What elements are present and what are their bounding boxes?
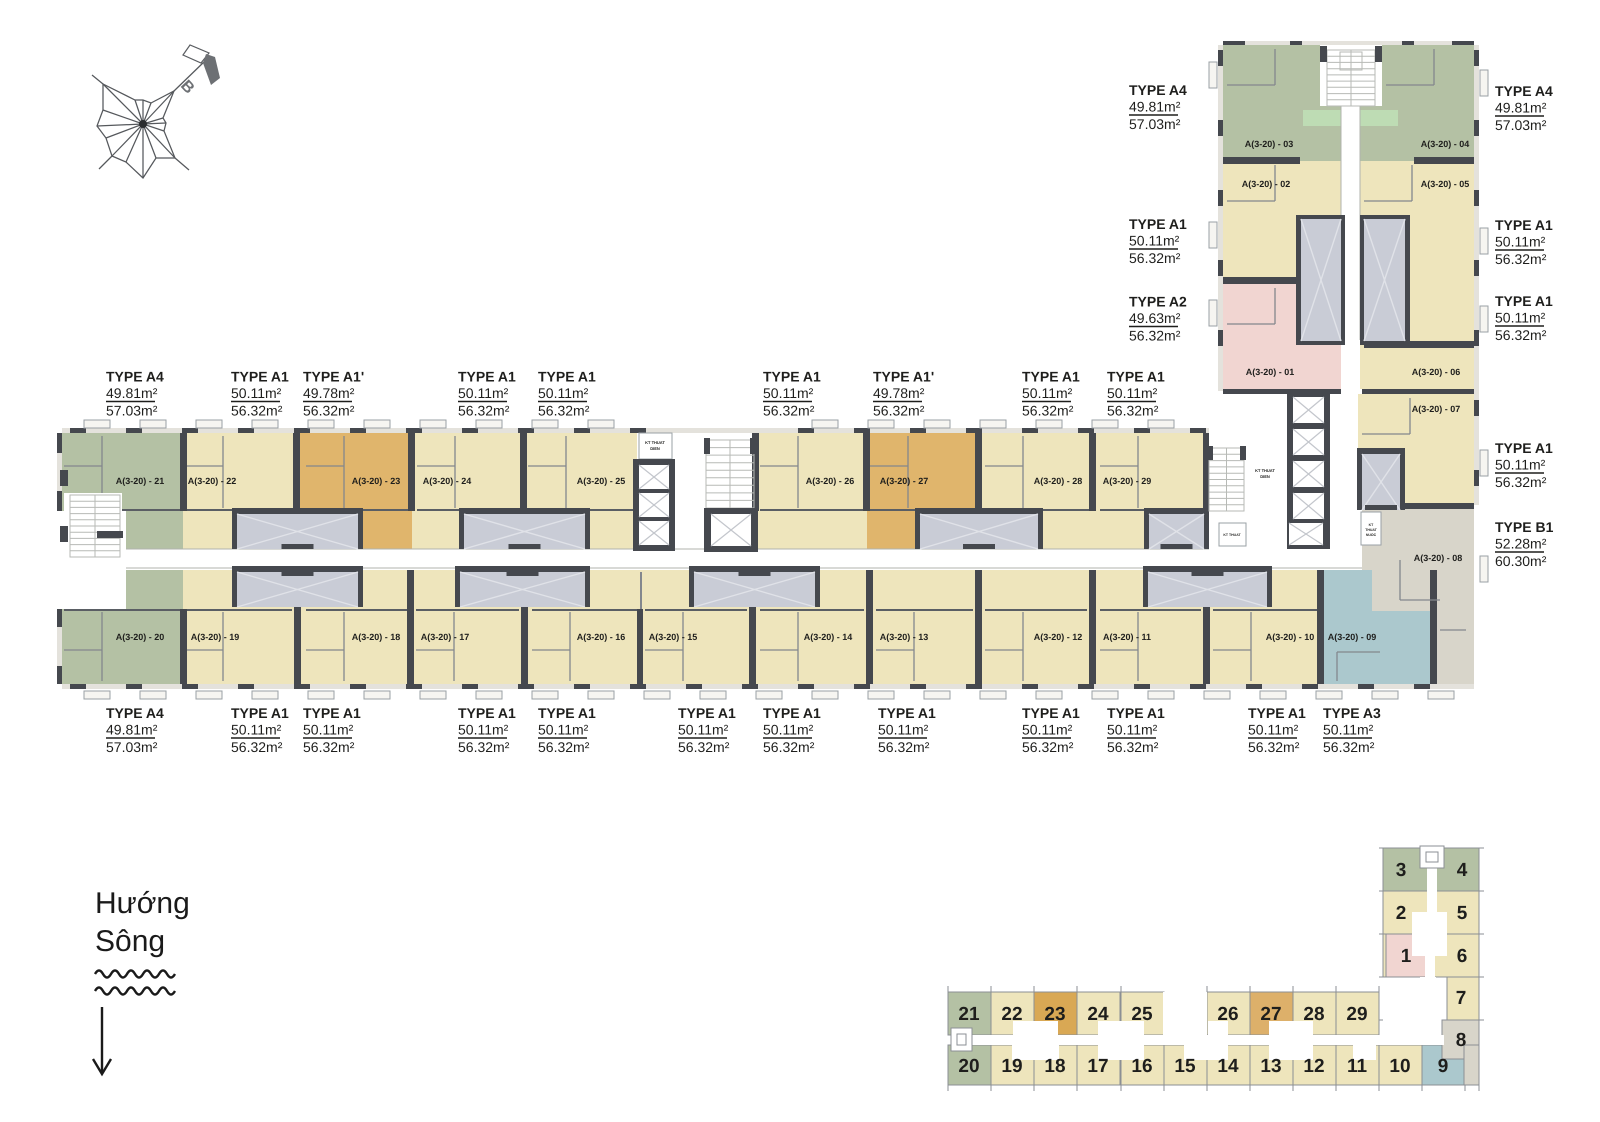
svg-text:56.32m²: 56.32m² — [1107, 403, 1159, 419]
svg-text:A(3-20) - 08: A(3-20) - 08 — [1414, 553, 1463, 563]
svg-text:3: 3 — [1396, 860, 1407, 881]
svg-text:28: 28 — [1303, 1004, 1324, 1025]
svg-text:50.11m²: 50.11m² — [1107, 722, 1158, 738]
svg-text:56.32m²: 56.32m² — [1107, 739, 1159, 755]
svg-text:56.32m²: 56.32m² — [1248, 739, 1300, 755]
svg-text:A(3-20) - 29: A(3-20) - 29 — [1103, 476, 1152, 486]
svg-text:THUAT: THUAT — [1365, 528, 1377, 532]
svg-text:50.11m²: 50.11m² — [678, 722, 729, 738]
svg-text:16: 16 — [1131, 1056, 1152, 1077]
svg-text:A(3-20) - 05: A(3-20) - 05 — [1421, 179, 1470, 189]
svg-text:DIEN: DIEN — [650, 446, 660, 451]
svg-text:50.11m²: 50.11m² — [1323, 722, 1374, 738]
svg-text:50.11m²: 50.11m² — [763, 385, 814, 401]
svg-text:TYPE A1: TYPE A1 — [1495, 217, 1553, 233]
svg-text:A(3-20) - 14: A(3-20) - 14 — [804, 632, 853, 642]
svg-text:A(3-20) - 23: A(3-20) - 23 — [352, 476, 401, 486]
svg-text:56.32m²: 56.32m² — [1022, 403, 1074, 419]
svg-text:50.11m²: 50.11m² — [538, 385, 589, 401]
svg-text:TYPE A1: TYPE A1 — [1022, 369, 1080, 385]
svg-text:56.32m²: 56.32m² — [458, 739, 510, 755]
svg-text:25: 25 — [1131, 1004, 1153, 1025]
svg-text:Hướng: Hướng — [95, 887, 190, 920]
svg-text:A(3-20) - 20: A(3-20) - 20 — [116, 632, 165, 642]
svg-text:A(3-20) - 01: A(3-20) - 01 — [1246, 367, 1295, 377]
svg-text:17: 17 — [1087, 1056, 1108, 1077]
svg-text:50.11m²: 50.11m² — [1495, 310, 1546, 326]
svg-text:56.32m²: 56.32m² — [1129, 328, 1181, 344]
svg-text:TYPE A1: TYPE A1 — [458, 705, 516, 721]
svg-text:49.63m²: 49.63m² — [1129, 310, 1181, 326]
svg-text:TYPE A1: TYPE A1 — [763, 369, 821, 385]
svg-text:56.32m²: 56.32m² — [763, 403, 815, 419]
svg-text:50.11m²: 50.11m² — [763, 722, 814, 738]
svg-text:20: 20 — [958, 1056, 979, 1077]
svg-text:TYPE A1: TYPE A1 — [1495, 440, 1553, 456]
svg-text:A(3-20) - 16: A(3-20) - 16 — [577, 632, 626, 642]
svg-text:TYPE A1: TYPE A1 — [1022, 705, 1080, 721]
svg-text:KT THUAT: KT THUAT — [1223, 533, 1241, 537]
svg-text:TYPE A4: TYPE A4 — [106, 705, 164, 721]
svg-text:2: 2 — [1396, 903, 1407, 924]
svg-text:A(3-20) - 25: A(3-20) - 25 — [577, 476, 626, 486]
svg-text:NUOC: NUOC — [1366, 533, 1377, 537]
svg-text:TYPE A2: TYPE A2 — [1129, 294, 1187, 310]
svg-text:22: 22 — [1001, 1004, 1022, 1025]
svg-text:A(3-20) - 11: A(3-20) - 11 — [1103, 632, 1151, 642]
svg-text:49.81m²: 49.81m² — [106, 385, 158, 401]
svg-text:49.78m²: 49.78m² — [303, 385, 355, 401]
svg-text:29: 29 — [1346, 1004, 1367, 1025]
svg-text:A(3-20) - 27: A(3-20) - 27 — [880, 476, 929, 486]
svg-text:A(3-20) - 17: A(3-20) - 17 — [421, 632, 470, 642]
svg-text:TYPE A1: TYPE A1 — [231, 705, 289, 721]
svg-text:A(3-20) - 09: A(3-20) - 09 — [1328, 632, 1377, 642]
svg-text:50.11m²: 50.11m² — [458, 385, 509, 401]
svg-text:9: 9 — [1438, 1056, 1449, 1077]
svg-text:7: 7 — [1456, 988, 1467, 1009]
svg-text:50.11m²: 50.11m² — [1022, 722, 1073, 738]
svg-text:18: 18 — [1044, 1056, 1065, 1077]
svg-text:50.11m²: 50.11m² — [1022, 385, 1073, 401]
svg-text:50.11m²: 50.11m² — [1107, 385, 1158, 401]
svg-text:A(3-20) - 24: A(3-20) - 24 — [423, 476, 472, 486]
svg-text:56.32m²: 56.32m² — [1323, 739, 1375, 755]
svg-text:A(3-20) - 18: A(3-20) - 18 — [352, 632, 401, 642]
svg-text:TYPE A1: TYPE A1 — [1495, 293, 1553, 309]
svg-text:50.11m²: 50.11m² — [1495, 457, 1546, 473]
svg-text:14: 14 — [1217, 1056, 1239, 1077]
svg-text:56.32m²: 56.32m² — [538, 739, 590, 755]
svg-text:A(3-20) - 06: A(3-20) - 06 — [1412, 367, 1461, 377]
svg-text:56.32m²: 56.32m² — [878, 739, 930, 755]
svg-text:49.81m²: 49.81m² — [1495, 100, 1547, 116]
svg-text:56.32m²: 56.32m² — [458, 403, 510, 419]
svg-text:56.32m²: 56.32m² — [873, 403, 925, 419]
svg-text:50.11m²: 50.11m² — [231, 722, 282, 738]
svg-text:56.32m²: 56.32m² — [231, 403, 283, 419]
svg-text:TYPE A4: TYPE A4 — [1129, 82, 1187, 98]
svg-text:TYPE A1: TYPE A1 — [538, 705, 596, 721]
svg-text:A(3-20) - 03: A(3-20) - 03 — [1245, 139, 1294, 149]
svg-text:12: 12 — [1303, 1056, 1324, 1077]
svg-text:4: 4 — [1457, 860, 1468, 881]
svg-text:A(3-20) - 10: A(3-20) - 10 — [1266, 632, 1315, 642]
svg-text:A(3-20) - 28: A(3-20) - 28 — [1034, 476, 1083, 486]
svg-text:60.30m²: 60.30m² — [1495, 553, 1547, 569]
svg-text:57.03m²: 57.03m² — [106, 403, 158, 419]
svg-text:A(3-20) - 04: A(3-20) - 04 — [1421, 139, 1470, 149]
svg-text:A(3-20) - 07: A(3-20) - 07 — [1412, 404, 1461, 414]
svg-text:56.32m²: 56.32m² — [1022, 739, 1074, 755]
svg-text:57.03m²: 57.03m² — [1495, 117, 1547, 133]
svg-text:50.11m²: 50.11m² — [231, 385, 282, 401]
svg-text:50.11m²: 50.11m² — [1248, 722, 1299, 738]
svg-text:TYPE A1: TYPE A1 — [538, 369, 596, 385]
svg-text:56.32m²: 56.32m² — [1129, 250, 1181, 266]
svg-text:50.11m²: 50.11m² — [458, 722, 509, 738]
svg-text:TYPE A1: TYPE A1 — [1107, 369, 1165, 385]
svg-text:TYPE A4: TYPE A4 — [1495, 83, 1553, 99]
svg-text:TYPE A1: TYPE A1 — [1248, 705, 1306, 721]
svg-text:1: 1 — [1401, 946, 1412, 967]
svg-text:A(3-20) - 22: A(3-20) - 22 — [188, 476, 237, 486]
svg-text:10: 10 — [1389, 1056, 1410, 1077]
svg-text:56.32m²: 56.32m² — [231, 739, 283, 755]
svg-text:56.32m²: 56.32m² — [538, 403, 590, 419]
svg-text:56.32m²: 56.32m² — [303, 403, 355, 419]
svg-text:57.03m²: 57.03m² — [1129, 116, 1181, 132]
svg-text:49.78m²: 49.78m² — [873, 385, 925, 401]
svg-text:50.11m²: 50.11m² — [1495, 234, 1546, 250]
svg-text:A(3-20) - 13: A(3-20) - 13 — [880, 632, 929, 642]
svg-text:TYPE A1': TYPE A1' — [303, 369, 364, 385]
svg-text:49.81m²: 49.81m² — [1129, 99, 1181, 115]
svg-text:TYPE B1: TYPE B1 — [1495, 519, 1554, 535]
svg-text:5: 5 — [1457, 903, 1468, 924]
svg-text:24: 24 — [1087, 1004, 1109, 1025]
svg-text:50.11m²: 50.11m² — [878, 722, 929, 738]
svg-text:TYPE A4: TYPE A4 — [106, 369, 164, 385]
svg-text:TYPE A1: TYPE A1 — [1129, 216, 1187, 232]
svg-text:15: 15 — [1174, 1056, 1196, 1077]
svg-text:11: 11 — [1347, 1056, 1368, 1077]
svg-text:TYPE A1': TYPE A1' — [873, 369, 934, 385]
svg-text:A(3-20) - 19: A(3-20) - 19 — [191, 632, 240, 642]
svg-text:56.32m²: 56.32m² — [303, 739, 355, 755]
svg-text:57.03m²: 57.03m² — [106, 739, 158, 755]
svg-text:6: 6 — [1457, 946, 1468, 967]
svg-text:50.11m²: 50.11m² — [1129, 233, 1180, 249]
svg-text:A(3-20) - 02: A(3-20) - 02 — [1242, 179, 1291, 189]
svg-text:26: 26 — [1217, 1004, 1238, 1025]
svg-text:TYPE A1: TYPE A1 — [878, 705, 936, 721]
svg-text:27: 27 — [1260, 1004, 1281, 1025]
svg-text:TYPE A1: TYPE A1 — [678, 705, 736, 721]
svg-text:TYPE A1: TYPE A1 — [231, 369, 289, 385]
svg-text:56.32m²: 56.32m² — [1495, 251, 1547, 267]
svg-text:21: 21 — [958, 1004, 980, 1025]
svg-text:13: 13 — [1260, 1056, 1281, 1077]
svg-text:52.28m²: 52.28m² — [1495, 536, 1547, 552]
svg-text:8: 8 — [1456, 1030, 1467, 1051]
svg-text:TYPE A3: TYPE A3 — [1323, 705, 1381, 721]
svg-text:Sông: Sông — [95, 925, 165, 958]
svg-text:50.11m²: 50.11m² — [303, 722, 354, 738]
svg-text:56.32m²: 56.32m² — [678, 739, 730, 755]
svg-text:TYPE A1: TYPE A1 — [763, 705, 821, 721]
svg-text:A(3-20) - 21: A(3-20) - 21 — [116, 476, 165, 486]
svg-text:A(3-20) - 12: A(3-20) - 12 — [1034, 632, 1083, 642]
svg-text:49.81m²: 49.81m² — [106, 722, 158, 738]
svg-text:KT THUAT: KT THUAT — [645, 440, 665, 445]
svg-text:TYPE A1: TYPE A1 — [1107, 705, 1165, 721]
svg-text:23: 23 — [1044, 1004, 1065, 1025]
svg-text:56.32m²: 56.32m² — [1495, 327, 1547, 343]
svg-text:KT THUAT: KT THUAT — [1255, 468, 1275, 473]
svg-text:56.32m²: 56.32m² — [1495, 474, 1547, 490]
svg-text:A(3-20) - 15: A(3-20) - 15 — [649, 632, 698, 642]
svg-text:DIEN: DIEN — [1260, 474, 1270, 479]
svg-text:TYPE A1: TYPE A1 — [458, 369, 516, 385]
svg-text:50.11m²: 50.11m² — [538, 722, 589, 738]
svg-text:19: 19 — [1001, 1056, 1022, 1077]
svg-text:TYPE A1: TYPE A1 — [303, 705, 361, 721]
svg-text:56.32m²: 56.32m² — [763, 739, 815, 755]
svg-text:A(3-20) - 26: A(3-20) - 26 — [806, 476, 855, 486]
